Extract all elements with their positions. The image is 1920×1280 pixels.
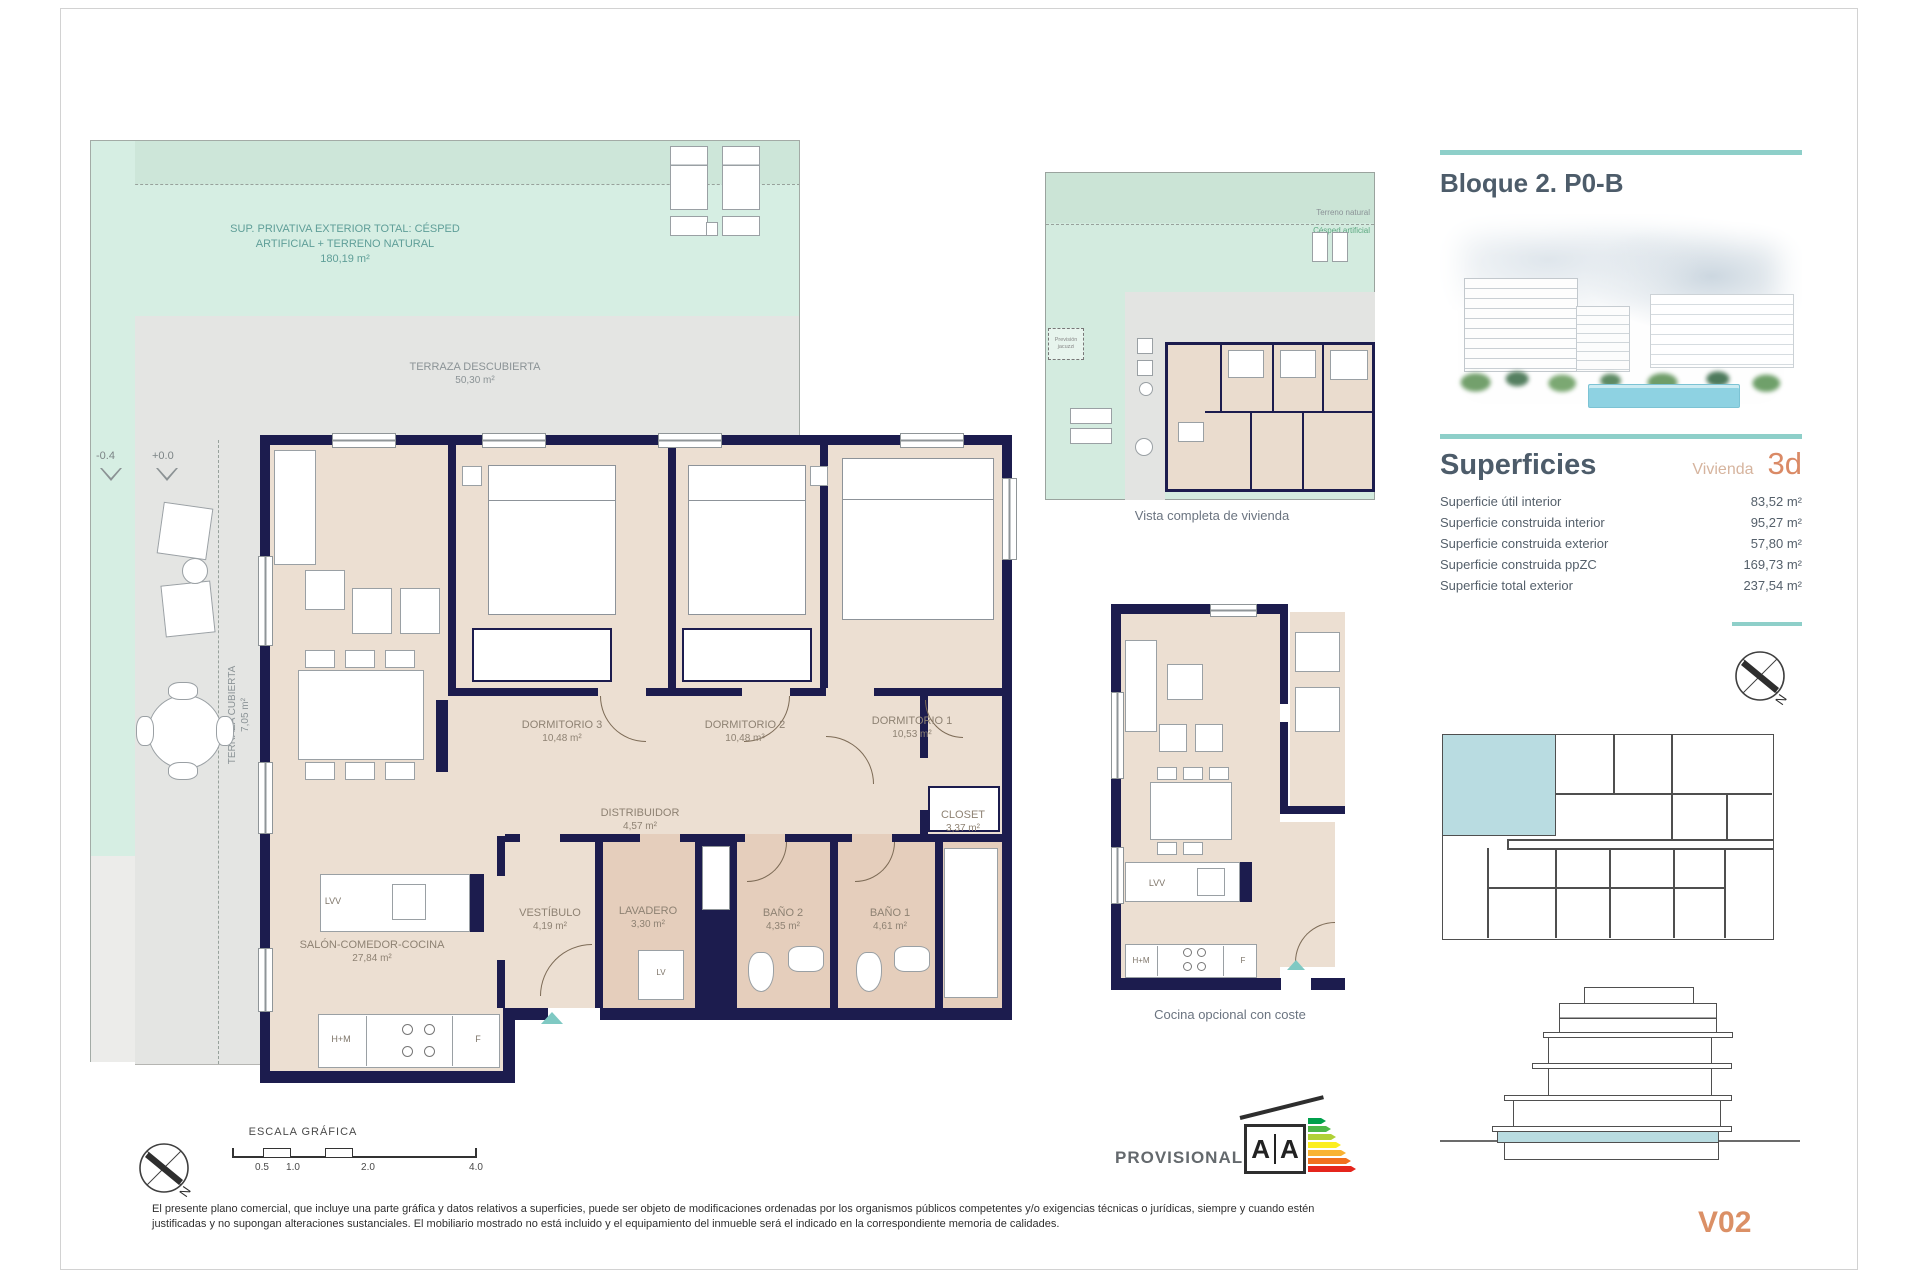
diagram-line: [1673, 848, 1675, 938]
highlighted-unit: [1443, 735, 1556, 836]
room-label-lavadero: LAVADERO3,30 m²: [619, 904, 677, 932]
wardrobe: [472, 628, 612, 682]
mini-wall: [1250, 411, 1252, 489]
armchair: [400, 588, 440, 634]
door-gap: [640, 834, 680, 842]
kp-wall: [1111, 604, 1286, 614]
plot-outline-left: [90, 140, 91, 1062]
compass-n-label: N: [1772, 691, 1790, 707]
dining-table: [298, 670, 424, 760]
superficies-rule: [1440, 434, 1802, 439]
elevation-basement: [1504, 1142, 1719, 1160]
room-label-closet: CLOSET3,37 m²: [941, 808, 985, 836]
energy-bar-d: [1308, 1142, 1341, 1148]
room-label-bano2: BAÑO 24,35 m²: [763, 906, 803, 934]
energy-house: A A: [1244, 1124, 1306, 1174]
toilet: [856, 952, 882, 992]
terraza-cubierta-label: TERRAZA CUBIERTA 7,05 m²: [226, 635, 252, 795]
mini-wall: [1272, 345, 1274, 411]
dining-chair: [385, 650, 415, 668]
terrace-round-table: [148, 695, 222, 769]
kp-hob-burner: [1197, 948, 1206, 957]
terrace-chair: [157, 502, 214, 560]
hob-burner: [402, 1046, 413, 1057]
energy-divider: [1274, 1134, 1276, 1164]
plot-outline-right: [799, 140, 800, 437]
superficies-header: Superficies Vivienda 3d: [1440, 446, 1802, 482]
dining-chair: [385, 762, 415, 780]
mini-bed: [1280, 350, 1316, 378]
lounger-cushion: [670, 216, 708, 236]
render-pool: [1588, 384, 1740, 408]
terrace-side-table: [182, 558, 208, 584]
wall: [830, 836, 838, 1008]
terraza-descubierta-label: TERRAZA DESCUBIERTA 50,30 m²: [409, 360, 540, 388]
mini-wall: [1205, 411, 1373, 413]
bed: [488, 465, 616, 615]
mini-lounger: [1312, 232, 1328, 262]
entrance-arrow: [541, 1012, 563, 1024]
superficies-row: Superficie construida ppZC169,73 m²: [1440, 557, 1802, 572]
toilet: [748, 952, 774, 992]
kp-sofa: [1125, 640, 1157, 732]
superficies-row: Superficie construida exterior57,80 m²: [1440, 536, 1802, 551]
kp-chair: [1183, 842, 1203, 855]
room-label-distribuidor: DISTRIBUIDOR4,57 m²: [601, 806, 680, 834]
room-label-vestibulo: VESTÍBULO4,19 m²: [519, 906, 581, 934]
energy-bar-a: [1308, 1118, 1326, 1124]
exterior-area-line2: ARTIFICIAL + TERRENO NATURAL: [205, 237, 485, 252]
island-end-column: [470, 874, 484, 932]
sink: [788, 946, 824, 972]
door-gap: [852, 834, 892, 842]
exterior-area-line3: 180,19 m²: [205, 252, 485, 267]
energy-rating-logo: A A: [1240, 1100, 1350, 1186]
kp-counter-divider: [1157, 946, 1158, 976]
wardrobe: [682, 628, 812, 682]
kp-island-sink: [1197, 868, 1225, 896]
dining-chair: [305, 650, 335, 668]
kitchen-plan: LVV H+M F Cocina opcional con coste: [1095, 592, 1355, 1022]
elevation-floor: [1548, 1068, 1712, 1096]
level-high-label: +0.0: [152, 450, 174, 462]
island-label: LVV: [325, 896, 341, 906]
nightstand: [462, 466, 482, 486]
elevation-floor: [1584, 987, 1694, 1004]
page-title: Bloque 2. P0-B: [1440, 168, 1623, 199]
disclaimer-text: El presente plano comercial, que incluye…: [152, 1202, 1332, 1232]
diagram-line: [1613, 735, 1615, 793]
superficies-row: Superficie total exterior237,54 m²: [1440, 578, 1802, 593]
mini-wall: [1322, 345, 1324, 411]
elevation-floor: [1559, 1003, 1717, 1033]
window: [258, 762, 273, 834]
room-label-bano1: BAÑO 14,61 m²: [870, 906, 910, 934]
kp-chair: [1209, 767, 1229, 780]
energy-bar-c: [1308, 1134, 1336, 1140]
plan-sheet: { "colors": { "wall_navy": "#1c1c4e", "m…: [0, 0, 1920, 1280]
mini-bed: [1228, 350, 1264, 378]
nightstand: [810, 466, 828, 486]
kp-wall: [1280, 722, 1288, 812]
window: [332, 433, 396, 448]
compass-n-label: N: [176, 1183, 194, 1199]
kp-wall: [1280, 604, 1288, 704]
exterior-area-label: SUP. PRIVATIVA EXTERIOR TOTAL: CÉSPED AR…: [205, 222, 485, 267]
door-gap: [742, 688, 790, 696]
room-label-dormitorio2: DORMITORIO 210,48 m²: [705, 718, 785, 746]
window: [900, 433, 964, 448]
wall: [600, 1008, 1012, 1020]
kp-dining-table: [1150, 782, 1232, 840]
window: [258, 556, 273, 646]
bed: [842, 458, 994, 620]
terraza-cubierta-dashed: [218, 440, 219, 1064]
wall: [448, 443, 456, 690]
kp-hob-burner: [1197, 962, 1206, 971]
scale-bar-tick: [475, 1148, 477, 1158]
scale-tick-label: 2.0: [354, 1162, 382, 1173]
provisional-label: PROVISIONAL: [1115, 1148, 1243, 1168]
kp-window: [1210, 604, 1257, 617]
energy-bar-g: [1308, 1166, 1356, 1172]
level-low-label: -0.4: [96, 450, 115, 462]
terrace-chair: [160, 581, 215, 638]
mini-round-table: [1135, 438, 1153, 456]
diagram-line: [1507, 839, 1773, 841]
kp-armchair: [1159, 724, 1187, 752]
kp-table: [1167, 664, 1203, 700]
kp-bed: [1295, 632, 1340, 672]
coffee-table: [305, 570, 345, 610]
superficies-row: Superficie construida interior95,27 m²: [1440, 515, 1802, 530]
garden-left-strip: [90, 140, 135, 856]
kp-wall: [1111, 978, 1281, 990]
terrace-chair: [168, 682, 198, 700]
door-gap: [920, 758, 928, 810]
diagram-line: [1609, 848, 1611, 938]
terrace-chair: [216, 716, 234, 746]
kp-island-label: LVV: [1149, 878, 1165, 888]
door-gap: [745, 834, 785, 842]
kp-wall: [1311, 978, 1345, 990]
mini-lounger: [1332, 232, 1348, 262]
sidebar-top-rule: [1440, 150, 1802, 155]
shower: [944, 848, 998, 998]
terrace-bottom-edge: [135, 1064, 260, 1065]
compass-icon: N: [1724, 644, 1808, 718]
mini-wall: [1220, 345, 1222, 411]
energy-letter: A: [1251, 1134, 1270, 1165]
elevation-floor: [1513, 1100, 1721, 1127]
block-position-diagram: [1442, 734, 1774, 940]
version-label: V02: [1698, 1206, 1751, 1240]
elevation-floor: [1548, 1037, 1712, 1064]
diagram-line: [1487, 848, 1489, 938]
kp-counter-divider: [1223, 946, 1224, 976]
sun-lounger: [670, 146, 708, 210]
overview-caption: Vista completa de vivienda: [1135, 508, 1289, 523]
diagram-line: [1726, 793, 1728, 839]
mini-table: [1178, 422, 1204, 442]
dining-chair: [345, 762, 375, 780]
scale-bar-box: [263, 1148, 291, 1158]
kp-bed: [1295, 687, 1340, 732]
sink: [894, 946, 930, 972]
kitchen-plan-caption: Cocina opcional con coste: [1154, 1007, 1306, 1022]
superficies-table: Superficie útil interior83,52 m² Superfi…: [1440, 494, 1802, 599]
building-render-image: [1440, 214, 1802, 422]
washer-label: LV: [656, 968, 665, 977]
wall: [497, 960, 505, 1008]
energy-bar-b: [1308, 1126, 1331, 1132]
overview-terrace-column: [1125, 292, 1165, 500]
energy-bar-f: [1308, 1158, 1351, 1164]
door-gap: [598, 688, 646, 696]
mini-side-table: [1139, 382, 1153, 396]
energy-bar-e: [1308, 1150, 1346, 1156]
wall: [260, 1071, 515, 1083]
scale-tick-label: 4.0: [462, 1162, 490, 1173]
fridge-label: F: [475, 1034, 481, 1044]
kp-window: [1111, 847, 1124, 904]
kp-hm-label: H+M: [1132, 956, 1149, 965]
overview-boundary-dashed: [1046, 224, 1374, 225]
unit-code: 3d: [1768, 446, 1802, 482]
tv-unit: [436, 700, 448, 772]
exterior-area-line1: SUP. PRIVATIVA EXTERIOR TOTAL: CÉSPED: [205, 222, 485, 237]
diagram-line: [1671, 735, 1673, 839]
wall: [668, 443, 676, 690]
door-gap: [826, 688, 874, 696]
kp-chair: [1157, 767, 1177, 780]
door-gap: [520, 834, 560, 842]
mini-lounger: [1070, 408, 1112, 424]
scale-bar-box: [325, 1148, 353, 1158]
kp-island-column: [1240, 862, 1252, 902]
energy-letter: A: [1280, 1134, 1299, 1165]
mini-chair: [1137, 338, 1153, 354]
diagram-line: [1507, 848, 1773, 850]
mini-bed: [1330, 350, 1368, 380]
kp-window: [1111, 692, 1124, 779]
kp-hob-burner: [1183, 962, 1192, 971]
armchair: [352, 588, 392, 634]
kp-hob-burner: [1183, 948, 1192, 957]
hob-burner: [424, 1024, 435, 1035]
level-high-marker-inner: [158, 468, 176, 478]
scale-tick-label: 0.5: [248, 1162, 276, 1173]
hob-burner: [402, 1024, 413, 1035]
overview-plan: Terreno natural Césped artificial Previs…: [1040, 170, 1385, 530]
sidebar-short-rule: [1732, 622, 1802, 626]
diagram-line: [1507, 839, 1509, 849]
kp-chair: [1183, 767, 1203, 780]
window: [658, 433, 722, 448]
superficies-row: Superficie útil interior83,52 m²: [1440, 494, 1802, 509]
jacuzzi-provision-box: Previsión jacuzzi: [1048, 328, 1084, 360]
room-label-salon: SALÓN-COMEDOR-COCINA27,84 m²: [300, 938, 445, 966]
kp-entrance-arrow: [1287, 960, 1305, 970]
level-low-marker-inner: [102, 468, 120, 478]
wall: [448, 688, 1012, 696]
scale-bar-tick: [232, 1148, 234, 1158]
mini-chair: [1137, 360, 1153, 376]
island-sink: [392, 884, 426, 920]
diagram-line: [1555, 848, 1557, 938]
room-label-dormitorio3: DORMITORIO 310,48 m²: [522, 718, 602, 746]
kp-wall: [1280, 806, 1345, 814]
kp-chair: [1157, 842, 1177, 855]
terrace-chair: [136, 716, 154, 746]
superficies-title: Superficies: [1440, 449, 1596, 482]
dining-chair: [345, 650, 375, 668]
sun-lounger: [722, 146, 760, 210]
window: [1002, 478, 1017, 560]
mini-lounger: [1070, 428, 1112, 444]
wall: [595, 834, 603, 1008]
lounger-table: [706, 222, 718, 236]
hob-burner: [424, 1046, 435, 1057]
room-label-dormitorio1: DORMITORIO 110,53 m²: [872, 714, 952, 742]
kp-fridge-label: F: [1241, 956, 1246, 965]
superficies-subtitle: Vivienda: [1692, 461, 1753, 479]
window: [258, 948, 273, 1012]
plot-outline-top: [90, 140, 800, 141]
terrace-left-tail: [90, 856, 135, 1062]
diagram-line: [1487, 887, 1725, 889]
counter-divider: [452, 1016, 453, 1066]
compass-icon: N: [128, 1136, 212, 1210]
bed: [688, 465, 806, 615]
lounger-cushion: [722, 216, 760, 236]
kp-wall: [1111, 604, 1121, 979]
sofa: [274, 450, 316, 565]
scale-title: ESCALA GRÁFICA: [233, 1126, 373, 1138]
dining-chair: [305, 762, 335, 780]
kp-armchair: [1195, 724, 1223, 752]
mini-wall: [1302, 411, 1304, 489]
wall: [935, 836, 943, 1008]
scale-tick-label: 1.0: [279, 1162, 307, 1173]
diagram-line: [1724, 848, 1726, 938]
window: [482, 433, 546, 448]
wall: [497, 836, 505, 876]
duct-shaft: [702, 846, 730, 910]
overview-terreno-label: Terreno natural: [1270, 208, 1370, 217]
counter-divider: [366, 1016, 367, 1066]
terrace-chair: [168, 762, 198, 780]
washer-dryer-label: H+M: [331, 1034, 350, 1044]
diagram-line: [1556, 793, 1772, 795]
